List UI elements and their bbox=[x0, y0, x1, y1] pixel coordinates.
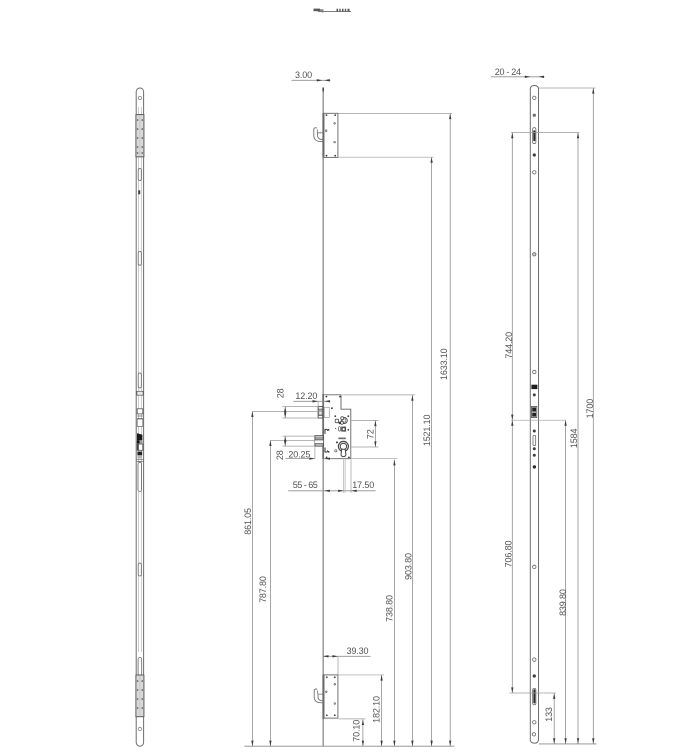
svg-text:787.80: 787.80 bbox=[258, 576, 268, 603]
svg-text:706.80: 706.80 bbox=[504, 541, 514, 568]
svg-text:903.80: 903.80 bbox=[403, 553, 413, 580]
svg-text:1633.10: 1633.10 bbox=[439, 348, 449, 380]
svg-text:3.00: 3.00 bbox=[295, 70, 312, 80]
svg-text:20.25: 20.25 bbox=[288, 449, 310, 459]
svg-text:744.20: 744.20 bbox=[504, 332, 514, 359]
svg-text:28: 28 bbox=[275, 450, 285, 460]
svg-text:861.05: 861.05 bbox=[243, 508, 253, 535]
svg-text:39.30: 39.30 bbox=[347, 646, 369, 656]
svg-text:28: 28 bbox=[275, 388, 285, 398]
svg-text:839.80: 839.80 bbox=[558, 589, 568, 616]
svg-text:1700: 1700 bbox=[585, 399, 595, 419]
svg-text:1584: 1584 bbox=[569, 429, 579, 449]
svg-text:20 - 24: 20 - 24 bbox=[495, 67, 521, 77]
svg-text:133: 133 bbox=[544, 707, 554, 722]
svg-text:55 - 65: 55 - 65 bbox=[293, 480, 318, 490]
svg-text:17.50: 17.50 bbox=[352, 480, 374, 490]
svg-text:182.10: 182.10 bbox=[372, 696, 382, 723]
svg-text:738.80: 738.80 bbox=[384, 595, 394, 622]
svg-text:70.10: 70.10 bbox=[351, 720, 361, 742]
svg-text:12.20: 12.20 bbox=[295, 391, 317, 401]
svg-text:1521.10: 1521.10 bbox=[422, 415, 432, 447]
svg-text:72: 72 bbox=[365, 429, 375, 439]
